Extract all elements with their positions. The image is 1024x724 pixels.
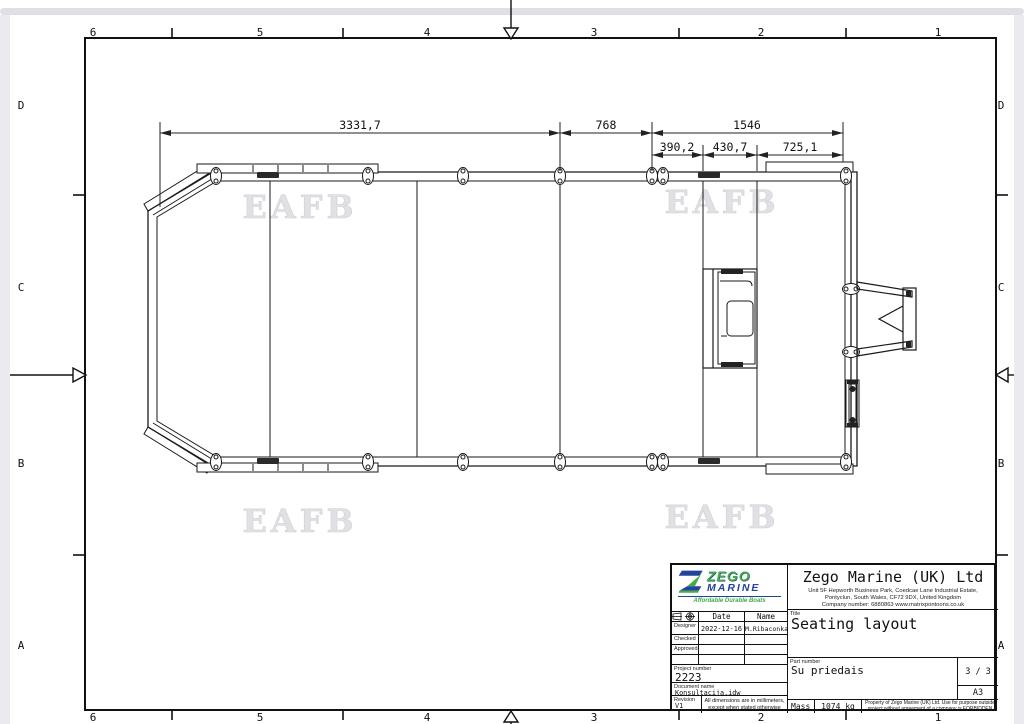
company-address-2: Pontyclun, South Wales, CF72 9DX, United…: [788, 595, 998, 602]
logo-tagline: Affordable Durable Boats: [678, 596, 781, 604]
logo-zego-text: ZEGO: [707, 569, 760, 583]
motor-bracket: [857, 282, 916, 356]
empty-row-cell-3: [745, 655, 788, 665]
svg-text:6: 6: [90, 26, 97, 39]
checked-name-cell: [745, 635, 788, 645]
designer-label-cell: Designer: [672, 622, 699, 635]
drawing-page: { "frame": { "top": ["6","5","4","3","2"…: [0, 0, 1024, 724]
property-note: Property of Zego Marine (UK) Ltd. Use fo…: [862, 700, 998, 713]
svg-text:A: A: [998, 639, 1005, 652]
logo-marine-text: MARINE: [707, 583, 760, 594]
svg-text:D: D: [998, 99, 1005, 112]
checked-label-cell: Checked: [672, 635, 699, 645]
svg-text:EAFB: EAFB: [243, 188, 358, 226]
drawing-title: Seating layout: [788, 617, 998, 632]
svg-text:3: 3: [591, 711, 598, 724]
svg-text:4: 4: [424, 711, 431, 724]
part-number-value: Su priedais: [788, 665, 957, 676]
svg-text:B: B: [18, 457, 25, 470]
svg-text:EAFB: EAFB: [665, 183, 780, 221]
approved-label-cell: Approved: [672, 645, 699, 655]
svg-text:390,2: 390,2: [660, 140, 695, 154]
project-number-value: 2223: [672, 672, 787, 683]
approved-date-cell: [699, 645, 745, 655]
name-header: Name: [745, 612, 788, 622]
zego-logo-icon: [678, 569, 704, 593]
svg-text:1546: 1546: [733, 118, 761, 132]
projection-symbol-cell: [672, 612, 699, 622]
designer-label: Designer: [672, 622, 698, 629]
console-seat: [703, 269, 757, 368]
svg-text:EAFB: EAFB: [243, 502, 358, 540]
logo-cell: ZEGO MARINE Affordable Durable Boats: [672, 565, 788, 612]
empty-row-cell-1: [672, 655, 699, 665]
svg-text:D: D: [18, 99, 25, 112]
part-number-cell: Part number Su priedais: [788, 658, 958, 700]
dimension-note: All dimensions are in millimeters, excep…: [702, 696, 788, 713]
svg-text:1: 1: [935, 26, 942, 39]
company-cell: Zego Marine (UK) Ltd Unit 5F Hepworth Bu…: [788, 565, 998, 610]
company-address-1: Unit 5F Hepworth Business Park, Coedcae …: [788, 588, 998, 595]
svg-text:6: 6: [90, 711, 97, 724]
revision-value: V1: [672, 703, 701, 709]
checked-date-cell: [699, 635, 745, 645]
company-name: Zego Marine (UK) Ltd: [788, 570, 998, 585]
svg-text:5: 5: [257, 26, 264, 39]
document-name-cell: Document name Konsultacija.idw: [672, 683, 788, 696]
company-address-3: Company number: 6880863 www.matrixpontoo…: [788, 602, 998, 610]
mass-value: 1074 kg: [815, 700, 862, 713]
title-block: ZEGO MARINE Affordable Durable Boats Zeg…: [670, 563, 996, 711]
project-number-cell: Project number 2223: [672, 665, 788, 683]
mass-label: Mass: [788, 700, 815, 713]
svg-text:3331,7: 3331,7: [339, 118, 381, 132]
date-header: Date: [699, 612, 745, 622]
watermark-text: EAFB EAFB EAFB EAFB: [243, 183, 780, 540]
svg-text:C: C: [18, 281, 25, 294]
approved-name-cell: [745, 645, 788, 655]
dimension-labels: 3331,7 768 1546 390,2 430,7 725,1: [339, 118, 817, 154]
approved-label: Approved: [672, 645, 698, 652]
svg-text:C: C: [998, 281, 1005, 294]
designer-date: 2022-12-16: [699, 622, 745, 635]
svg-text:725,1: 725,1: [783, 140, 818, 154]
revision-cell: Revision V1: [672, 696, 702, 713]
checked-label: Checked: [672, 635, 698, 642]
svg-text:A: A: [18, 639, 25, 652]
first-angle-projection-icon: [672, 612, 698, 621]
svg-text:2: 2: [758, 26, 765, 39]
empty-row-cell-2: [699, 655, 745, 665]
title-cell: Title Seating layout: [788, 610, 998, 658]
svg-text:3: 3: [591, 26, 598, 39]
svg-text:430,7: 430,7: [713, 140, 748, 154]
sheet-number: 3 / 3: [958, 658, 998, 686]
svg-text:EAFB: EAFB: [665, 498, 780, 536]
svg-text:5: 5: [257, 711, 264, 724]
svg-text:B: B: [998, 457, 1005, 470]
svg-text:4: 4: [424, 26, 431, 39]
svg-text:768: 768: [596, 118, 617, 132]
paper-format: A3: [958, 686, 998, 700]
designer-name: M.Ribaconka: [745, 622, 788, 635]
